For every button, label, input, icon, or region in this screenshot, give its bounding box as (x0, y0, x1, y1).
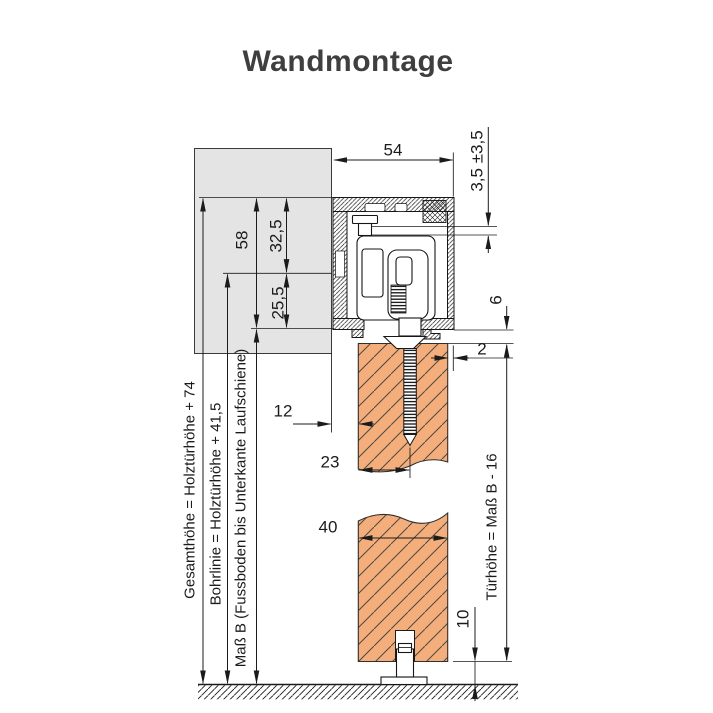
door-panel-lower (358, 513, 447, 662)
dim-track-door-gap-label: 6 (488, 295, 505, 304)
label-gesamthoehe: Gesamthöhe = Holztürhöhe + 74 (183, 381, 198, 599)
carriage-assembly (353, 216, 498, 337)
dim-door-track-offset-label: 2 (477, 341, 486, 358)
dim-height-adjust-label: 3,5 ±3,5 (469, 130, 486, 191)
dim-door-thickness-label: 40 (319, 519, 338, 536)
technical-drawing (0, 0, 713, 713)
label-mass-b: Maß B (Fussboden bis Unterkante Laufschi… (234, 349, 249, 668)
dim-floor-clearance-label: 10 (455, 610, 472, 629)
door-panel-upper (358, 344, 447, 472)
wall-panel (195, 149, 332, 354)
label-tuerhoehe: Türhöhe = Maß B - 16 (485, 453, 500, 600)
wandmontage-diagram: Wandmontage (0, 0, 713, 713)
dim-track-width-label: 54 (384, 142, 403, 159)
dim-edge-to-screw-label: 23 (321, 454, 340, 471)
dim-drill-to-bottom-label: 25,5 (270, 286, 287, 319)
floor (198, 685, 518, 700)
dim-track-height-label: 58 (234, 231, 251, 250)
label-bohrlinie: Bohrlinie = Holztürhöhe + 41,5 (209, 403, 224, 606)
dim-wall-door-gap-label: 12 (274, 403, 293, 420)
dim-top-to-drill-label: 32,5 (268, 219, 285, 252)
